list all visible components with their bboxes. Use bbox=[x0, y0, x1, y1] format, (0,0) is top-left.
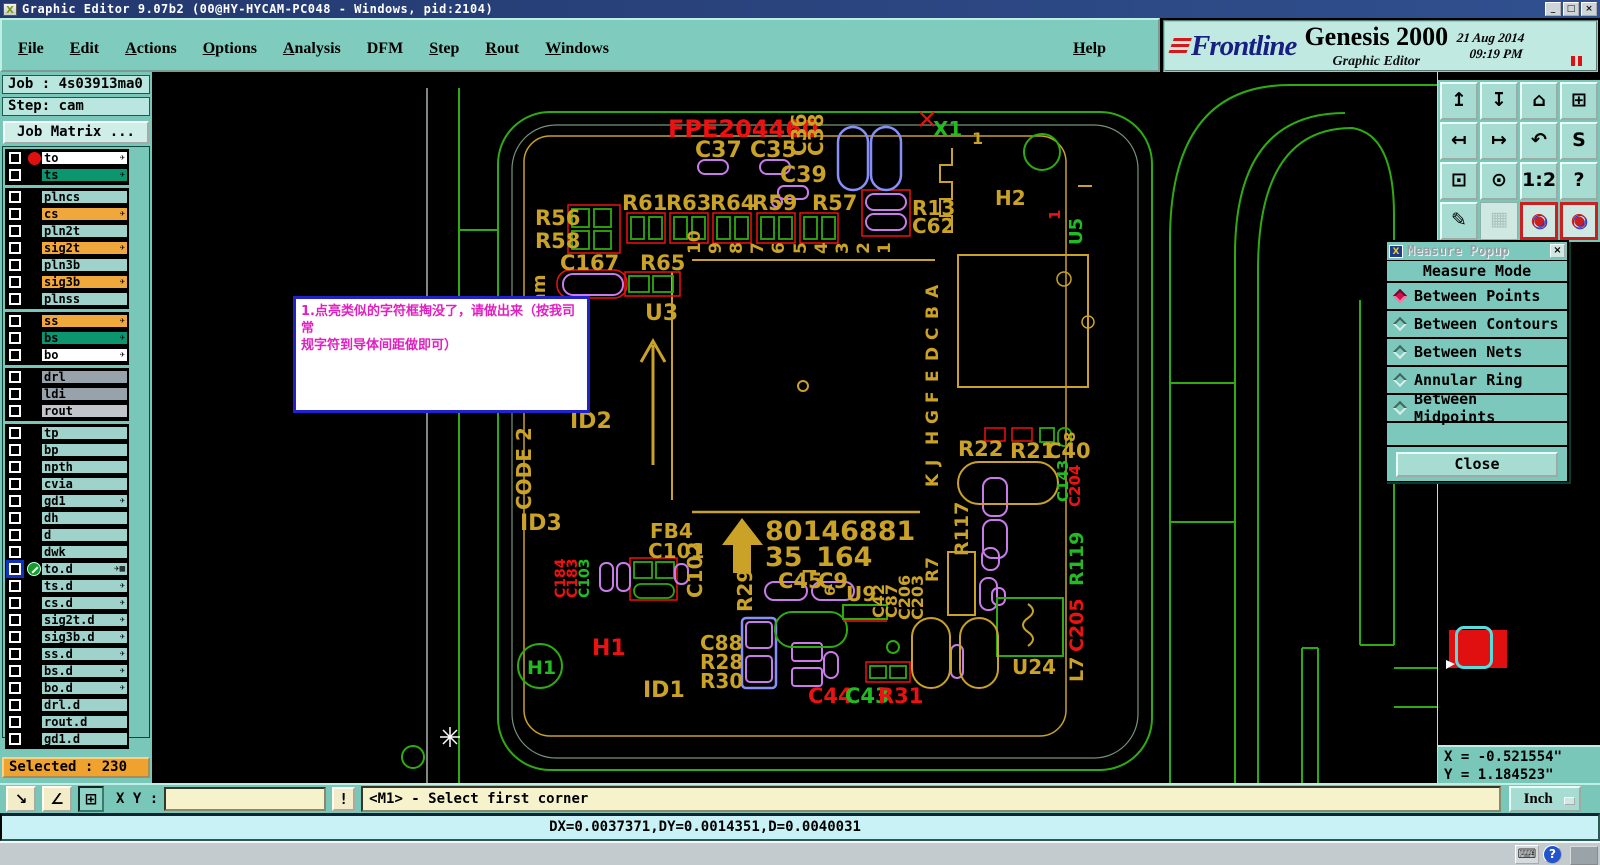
layer-checkbox-ss[interactable] bbox=[9, 315, 21, 327]
measure-option-between-nets[interactable]: Between Nets bbox=[1387, 339, 1567, 367]
layer-row-sig2t.d[interactable]: sig2t.d✈ bbox=[6, 612, 128, 628]
layer-chip-sig3b.d[interactable]: sig3b.d✈ bbox=[41, 630, 128, 644]
layer-chip-plncs[interactable]: plncs bbox=[41, 190, 128, 204]
pcb-label: 8 bbox=[1061, 432, 1079, 442]
app-icon: X bbox=[3, 3, 17, 16]
pcb-label: A bbox=[923, 284, 943, 298]
measure-popup-close-icon[interactable]: × bbox=[1550, 244, 1565, 258]
layer-row-tp[interactable]: tp bbox=[6, 425, 128, 441]
pcb-label: R64 bbox=[710, 191, 755, 215]
layer-row-bs.d[interactable]: bs.d✈ bbox=[6, 663, 128, 679]
layer-arrow-icon: ✈ bbox=[120, 616, 125, 625]
pcb-label: 3 bbox=[833, 242, 853, 254]
menu-options[interactable]: Options bbox=[203, 40, 257, 57]
taskbar: ⌨? bbox=[0, 841, 1600, 865]
layer-row-to[interactable]: to✈ bbox=[6, 150, 128, 166]
zoom-center-button[interactable]: ⊙ bbox=[1480, 162, 1518, 200]
pcb-label: R58 bbox=[535, 229, 580, 253]
layer-chip-cs.d[interactable]: cs.d✈ bbox=[41, 596, 128, 610]
product-edition: Graphic Editor bbox=[1304, 54, 1448, 70]
layer-chip-pln3b[interactable]: pln3b bbox=[41, 258, 128, 272]
layer-row-bo[interactable]: bo✈ bbox=[6, 347, 128, 363]
measure-popup-footer: Close bbox=[1387, 445, 1567, 481]
layer-row-cs[interactable]: cs✈ bbox=[6, 206, 128, 222]
pcb-label: C39 bbox=[780, 163, 827, 188]
layer-name: bo bbox=[44, 349, 58, 361]
layer-checkbox-rout.d[interactable] bbox=[9, 716, 21, 728]
layer-arrow-icon: ✈ bbox=[120, 210, 125, 219]
measure-angle-button[interactable]: ∠ bbox=[42, 786, 72, 812]
layer-arrow-icon: ✈ bbox=[120, 599, 125, 608]
datetime: 21 Aug 2014 09:19 PM bbox=[1454, 30, 1525, 63]
netlist-b-button[interactable]: ◉ bbox=[1560, 202, 1598, 240]
layer-checkbox-sig2t.d[interactable] bbox=[9, 614, 21, 626]
layer-chip-gd1[interactable]: gd1✈ bbox=[41, 494, 128, 508]
prompt-message: <M1> - Select first corner bbox=[361, 786, 1501, 812]
layer-arrow-icon: ✈ bbox=[120, 317, 125, 326]
layer-row-to.d[interactable]: to.d✈▦ bbox=[6, 561, 128, 577]
layer-name: plncs bbox=[44, 191, 80, 203]
layer-checkbox-d[interactable] bbox=[9, 529, 21, 541]
layer-checkbox-dh[interactable] bbox=[9, 512, 21, 524]
layer-row-dwk[interactable]: dwk bbox=[6, 544, 128, 560]
pcb-label: R119 bbox=[1066, 532, 1088, 586]
pcb-label: L7 bbox=[1066, 657, 1088, 682]
netlist-a-button[interactable]: ◉ bbox=[1520, 202, 1558, 240]
pcb-label: U3 bbox=[645, 301, 678, 326]
graphic-editor-window: X Graphic Editor 9.07b2 (00@HY-HYCAM-PC0… bbox=[0, 0, 1600, 865]
pcb-label: 1 bbox=[972, 129, 983, 148]
layer-chip-to[interactable]: to✈ bbox=[41, 151, 128, 165]
pcb-label: C45 bbox=[778, 569, 823, 593]
note-line-2: 规字符到导体间距做即可） bbox=[301, 337, 582, 354]
layer-group-3: ss✈bs✈bo✈ bbox=[5, 312, 129, 365]
layer-checkbox-npth[interactable] bbox=[9, 461, 21, 473]
layer-arrow-icon: ✈▦ bbox=[114, 565, 125, 574]
layer-name: d bbox=[44, 529, 51, 541]
layer-name: cs.d bbox=[44, 597, 73, 609]
pcb-label: ID1 bbox=[643, 678, 685, 703]
note-line-1: 1.点亮类似的字符框掏没了，请做出来（按我司常 bbox=[301, 303, 582, 337]
pcb-label: R56 bbox=[535, 206, 580, 230]
layer-checkbox-dwk[interactable] bbox=[9, 546, 21, 558]
layer-checkbox-sig3b.d[interactable] bbox=[9, 631, 21, 643]
step-label: Step: cam bbox=[2, 97, 150, 116]
layer-row-sig3b[interactable]: sig3b✈ bbox=[6, 274, 128, 290]
job-label: Job : 4s03913ma0 bbox=[2, 75, 150, 94]
selection-outline bbox=[1455, 626, 1493, 669]
xy-label: X Y : bbox=[116, 791, 158, 807]
layer-chip-drl.d[interactable]: drl.d bbox=[41, 698, 128, 712]
menu-help[interactable]: Help bbox=[1073, 40, 1106, 58]
layer-chip-sig3b[interactable]: sig3b✈ bbox=[41, 275, 128, 289]
layer-chip-bo[interactable]: bo✈ bbox=[41, 348, 128, 362]
layer-chip-npth[interactable]: npth bbox=[41, 460, 128, 474]
measure-popup-titlebar[interactable]: X Measure Popup × bbox=[1387, 242, 1567, 261]
menu-file[interactable]: File bbox=[18, 40, 44, 57]
frontline-stripes-icon bbox=[1168, 38, 1192, 54]
layer-row-rout[interactable]: rout bbox=[6, 403, 128, 419]
pcb-label: X1 bbox=[933, 117, 962, 141]
layer-name: sig2t bbox=[44, 242, 80, 254]
pcb-label: C102 bbox=[683, 542, 707, 598]
layer-checkbox-sig3b[interactable] bbox=[9, 276, 21, 288]
measure-options: Between PointsBetween ContoursBetween Ne… bbox=[1387, 283, 1567, 423]
menu-step[interactable]: Step bbox=[429, 40, 459, 57]
layer-arrow-icon: ✈ bbox=[120, 582, 125, 591]
selected-count: Selected : 230 bbox=[2, 757, 150, 778]
maximize-button[interactable]: □ bbox=[1563, 2, 1579, 16]
units-dropdown[interactable]: Inch bbox=[1509, 786, 1581, 812]
xy-input[interactable] bbox=[164, 787, 326, 811]
layer-arrow-icon: ✈ bbox=[120, 278, 125, 287]
pcb-label: C62 bbox=[912, 214, 955, 238]
measure-option-between-points[interactable]: Between Points bbox=[1387, 283, 1567, 311]
pcb-label: C38 bbox=[804, 113, 828, 156]
layer-chip-to.d[interactable]: to.d✈▦ bbox=[41, 562, 128, 576]
radio-diamond-icon bbox=[1393, 345, 1407, 359]
layer-chip-drl[interactable]: drl bbox=[41, 370, 128, 384]
layer-chip-pln2t[interactable]: pln2t bbox=[41, 224, 128, 238]
layer-name: plnss bbox=[44, 293, 80, 305]
measure-option-between-contours[interactable]: Between Contours bbox=[1387, 311, 1567, 339]
pcb-label: 10 bbox=[685, 230, 705, 254]
zoom-in-button[interactable]: ↥ bbox=[1440, 82, 1478, 120]
layer-name: ss.d bbox=[44, 648, 73, 660]
pcb-label: 6 bbox=[769, 242, 789, 254]
layer-checkbox-rout[interactable] bbox=[9, 405, 21, 417]
pcb-label: U24 bbox=[1012, 655, 1056, 679]
layer-chip-bp[interactable]: bp bbox=[41, 443, 128, 457]
pcb-label: CODE 2 bbox=[512, 427, 536, 510]
layer-checkbox-cs[interactable] bbox=[9, 208, 21, 220]
layer-arrow-icon: ✈ bbox=[120, 351, 125, 360]
menu-rout[interactable]: Rout bbox=[485, 40, 519, 57]
radio-diamond-icon bbox=[1393, 401, 1407, 415]
layer-checkbox-tp[interactable] bbox=[9, 427, 21, 439]
home-view-button[interactable]: ⌂ bbox=[1520, 82, 1558, 120]
layer-row-plncs[interactable]: plncs bbox=[6, 189, 128, 205]
layer-row-bo.d[interactable]: bo.d✈ bbox=[6, 680, 128, 696]
coordinate-readout: X = -0.521554" Y = 1.184523" bbox=[1438, 745, 1600, 783]
layer-name: rout.d bbox=[44, 716, 87, 728]
layer-chip-rout[interactable]: rout bbox=[41, 404, 128, 418]
pause-icon bbox=[1571, 56, 1582, 66]
pcb-label: H bbox=[923, 431, 943, 445]
layer-chip-ts[interactable]: ts✈ bbox=[41, 168, 128, 182]
layer-chip-rout.d[interactable]: rout.d bbox=[41, 715, 128, 729]
measure-option-label: Between Midpoints bbox=[1414, 390, 1567, 426]
layer-row-d[interactable]: d bbox=[6, 527, 128, 543]
layer-checkbox-pln2t[interactable] bbox=[9, 225, 21, 237]
measure-popup-spacer bbox=[1387, 423, 1567, 445]
edit-tools-button[interactable]: ✎ bbox=[1440, 202, 1478, 240]
pcb-label: H2 bbox=[995, 186, 1026, 210]
layer-name: dwk bbox=[44, 546, 66, 558]
frontline-logo: Frontline bbox=[1191, 30, 1296, 63]
layer-row-ss[interactable]: ss✈ bbox=[6, 313, 128, 329]
grid-toggle-button[interactable]: ▦ bbox=[1480, 202, 1518, 240]
layer-row-bs[interactable]: bs✈ bbox=[6, 330, 128, 346]
layer-arrow-icon: ✈ bbox=[120, 650, 125, 659]
layer-arrow-icon: ✈ bbox=[120, 667, 125, 676]
pcb-label: R31 bbox=[878, 684, 923, 708]
pcb-label: D bbox=[923, 347, 943, 361]
layer-checkbox-bs.d[interactable] bbox=[9, 665, 21, 677]
layer-group-4: drlldirout bbox=[5, 368, 129, 421]
layer-chip-ss[interactable]: ss✈ bbox=[41, 314, 128, 328]
pcb-label: 7 bbox=[748, 242, 768, 254]
layer-row-gd1[interactable]: gd1✈ bbox=[6, 493, 128, 509]
measure-mode-header: Measure Mode bbox=[1387, 261, 1567, 283]
work-layer-icon bbox=[27, 562, 41, 576]
layer-chip-cs[interactable]: cs✈ bbox=[41, 207, 128, 221]
measure-close-button[interactable]: Close bbox=[1396, 452, 1558, 477]
exclaim-button[interactable]: ! bbox=[332, 787, 355, 811]
layer-chip-d[interactable]: d bbox=[41, 528, 128, 542]
pcb-label: R30 bbox=[700, 669, 743, 693]
window-xy-button[interactable]: ⊞ bbox=[1560, 82, 1598, 120]
layer-checkbox-cs.d[interactable] bbox=[9, 597, 21, 609]
delta-statusbar: DX=0.0037371,DY=0.0014351,D=0.0040031 bbox=[0, 813, 1600, 841]
layer-chip-bo.d[interactable]: bo.d✈ bbox=[41, 681, 128, 695]
pan-right-button[interactable]: ↦ bbox=[1480, 122, 1518, 160]
layer-row-drl.d[interactable]: drl.d bbox=[6, 697, 128, 713]
pcb-label: K bbox=[923, 473, 943, 487]
layer-arrow-icon: ✈ bbox=[120, 154, 125, 163]
layer-name: drl.d bbox=[44, 699, 80, 711]
layer-row-bp[interactable]: bp bbox=[6, 442, 128, 458]
layer-row-rout.d[interactable]: rout.d bbox=[6, 714, 128, 730]
layer-row-sig3b.d[interactable]: sig3b.d✈ bbox=[6, 629, 128, 645]
select-mode-button[interactable]: ↘ bbox=[6, 786, 36, 812]
menu-analysis[interactable]: Analysis bbox=[283, 40, 341, 57]
time: 09:19 PM bbox=[1454, 46, 1523, 62]
pan-left-button[interactable]: ↤ bbox=[1440, 122, 1478, 160]
layer-name: npth bbox=[44, 461, 73, 473]
layer-name: to.d bbox=[44, 563, 73, 575]
layer-checkbox-gd1[interactable] bbox=[9, 495, 21, 507]
menu-edit[interactable]: Edit bbox=[70, 40, 99, 57]
layer-name: gd1.d bbox=[44, 733, 80, 745]
window-buttons: _ □ × bbox=[1545, 2, 1597, 16]
layer-chip-dh[interactable]: dh bbox=[41, 511, 128, 525]
product-block: Genesis 2000 Graphic Editor bbox=[1304, 22, 1448, 70]
menu-dfm[interactable]: DFM bbox=[367, 40, 403, 57]
undo-view-button[interactable]: ↶ bbox=[1520, 122, 1558, 160]
keyboard-icon[interactable]: ⌨ bbox=[1515, 845, 1539, 864]
layer-row-ldi[interactable]: ldi bbox=[6, 386, 128, 402]
help-pick-button[interactable]: ? bbox=[1560, 162, 1598, 200]
layer-arrow-icon: ✈ bbox=[120, 684, 125, 693]
layer-name: bs.d bbox=[44, 665, 73, 677]
pcb-label: G bbox=[923, 410, 943, 424]
popup-icon: X bbox=[1389, 245, 1403, 258]
zoom-out-button[interactable]: ↧ bbox=[1480, 82, 1518, 120]
layer-name: sig3b bbox=[44, 276, 80, 288]
active-layer-dot bbox=[28, 152, 41, 165]
product-name: Genesis 2000 bbox=[1304, 22, 1448, 51]
layer-checkbox-ts[interactable] bbox=[9, 169, 21, 181]
step-outline-button[interactable]: S bbox=[1560, 122, 1598, 160]
pcb-label: R65 bbox=[640, 251, 685, 275]
layer-chip-dwk[interactable]: dwk bbox=[41, 545, 128, 559]
tray-box[interactable] bbox=[1570, 846, 1598, 865]
pcb-label: U5 bbox=[1066, 218, 1087, 245]
layer-row-sig2t[interactable]: sig2t✈ bbox=[6, 240, 128, 256]
titlebar: X Graphic Editor 9.07b2 (00@HY-HYCAM-PC0… bbox=[0, 0, 1600, 18]
pcb-label: 9 bbox=[706, 242, 726, 254]
layer-checkbox-ldi[interactable] bbox=[9, 388, 21, 400]
pcb-label: ID3 bbox=[520, 511, 562, 536]
menu-windows[interactable]: Windows bbox=[545, 40, 609, 57]
layer-chip-cvia[interactable]: cvia bbox=[41, 477, 128, 491]
layer-checkbox-to[interactable] bbox=[9, 152, 21, 164]
menu-actions[interactable]: Actions bbox=[125, 40, 177, 57]
job-matrix-button[interactable]: Job Matrix ... bbox=[3, 121, 149, 144]
pcb-label: F bbox=[923, 391, 943, 403]
pcb-label: R22 bbox=[958, 437, 1003, 461]
layer-name: cvia bbox=[44, 478, 73, 490]
layer-row-cs.d[interactable]: cs.d✈ bbox=[6, 595, 128, 611]
pcb-label: 1 bbox=[875, 242, 895, 254]
layer-checkbox-plnss[interactable] bbox=[9, 293, 21, 305]
measure-option-label: Annular Ring bbox=[1414, 371, 1522, 389]
pcb-label: R63 bbox=[666, 191, 711, 215]
pcb-label: 4 bbox=[812, 242, 832, 254]
pcb-label: R61 bbox=[622, 191, 667, 215]
layer-chip-bs[interactable]: bs✈ bbox=[41, 331, 128, 345]
layer-checkbox-ss.d[interactable] bbox=[9, 648, 21, 660]
measure-popup: X Measure Popup × Measure Mode Between P… bbox=[1385, 240, 1569, 482]
layer-name: ldi bbox=[44, 388, 66, 400]
measure-option-label: Between Points bbox=[1414, 287, 1540, 305]
layer-name: sig2t.d bbox=[44, 614, 95, 626]
pcb-label: 1 bbox=[1046, 210, 1064, 220]
grid-snap-button[interactable]: ⊞ bbox=[78, 786, 104, 812]
pcb-label: C167 bbox=[560, 251, 619, 275]
measure-option-between-midpoints[interactable]: Between Midpoints bbox=[1387, 395, 1567, 423]
pcb-label: 5 bbox=[791, 242, 811, 254]
layer-group-5: tpbpnpthcviagd1✈dhddwkto.d✈▦ts.d✈cs.d✈si… bbox=[5, 424, 129, 749]
help-icon[interactable]: ? bbox=[1543, 845, 1562, 864]
layer-arrow-icon: ✈ bbox=[120, 633, 125, 642]
layer-chip-gd1.d[interactable]: gd1.d bbox=[41, 732, 128, 746]
layer-checkbox-pln3b[interactable] bbox=[9, 259, 21, 271]
layer-row-drl[interactable]: drl bbox=[6, 369, 128, 385]
coord-x: X = -0.521554" bbox=[1444, 748, 1600, 766]
layer-checkbox-bs[interactable] bbox=[9, 332, 21, 344]
pcb-label: C103 bbox=[577, 559, 593, 599]
layer-chip-sig2t[interactable]: sig2t✈ bbox=[41, 241, 128, 255]
layer-name: gd1 bbox=[44, 495, 66, 507]
layer-row-dh[interactable]: dh bbox=[6, 510, 128, 526]
radio-diamond-icon bbox=[1393, 373, 1407, 387]
brand-panel: Frontline Genesis 2000 Graphic Editor 21… bbox=[1163, 20, 1598, 72]
layer-row-plnss[interactable]: plnss bbox=[6, 291, 128, 307]
layer-checkbox-cvia[interactable] bbox=[9, 478, 21, 490]
layer-checkbox-drl[interactable] bbox=[9, 371, 21, 383]
layer-checkbox-bo.d[interactable] bbox=[9, 682, 21, 694]
layer-checkbox-gd1.d[interactable] bbox=[9, 733, 21, 745]
layer-chip-tp[interactable]: tp bbox=[41, 426, 128, 440]
coord-y: Y = 1.184523" bbox=[1444, 766, 1600, 784]
layer-name: bo.d bbox=[44, 682, 73, 694]
cursor-arrow-icon bbox=[1446, 660, 1455, 669]
date: 21 Aug 2014 bbox=[1456, 30, 1525, 46]
layer-checkbox-sig2t[interactable] bbox=[9, 242, 21, 254]
layer-checkbox-ts.d[interactable] bbox=[9, 580, 21, 592]
zoom-fit-button[interactable]: ⊡ bbox=[1440, 162, 1478, 200]
layer-name: ss bbox=[44, 315, 58, 327]
right-toolbar: ↥↧⌂⊞↤↦↶S⊡⊙1:2?✎▦◉◉ bbox=[1438, 80, 1600, 242]
layer-row-ts[interactable]: ts✈ bbox=[6, 167, 128, 183]
layer-chip-ldi[interactable]: ldi bbox=[41, 387, 128, 401]
close-button[interactable]: × bbox=[1581, 2, 1597, 16]
layer-row-gd1.d[interactable]: gd1.d bbox=[6, 731, 128, 747]
taskbar-icons: ⌨? bbox=[1515, 845, 1562, 864]
pcb-label: C204 bbox=[1066, 465, 1084, 507]
measure-option-label: Between Contours bbox=[1414, 315, 1559, 333]
annotation-note: 1.点亮类似的字符框掏没了，请做出来（按我司常 规字符到导体间距做即可） bbox=[293, 296, 590, 413]
layer-name: bp bbox=[44, 444, 58, 456]
pcb-canvas[interactable]: FPE204460C37C35C36C38C39R61R63R64R59R57R… bbox=[152, 72, 1437, 783]
pcb-label: J bbox=[923, 460, 943, 467]
layer-name: pln3b bbox=[44, 259, 80, 271]
layer-row-pln2t[interactable]: pln2t bbox=[6, 223, 128, 239]
layer-name: ts.d bbox=[44, 580, 73, 592]
layer-row-cvia[interactable]: cvia bbox=[6, 476, 128, 492]
layer-name: rout bbox=[44, 405, 73, 417]
layer-row-ss.d[interactable]: ss.d✈ bbox=[6, 646, 128, 662]
layer-group-2: plncscs✈pln2tsig2t✈pln3bsig3b✈plnss bbox=[5, 188, 129, 309]
layer-name: pln2t bbox=[44, 225, 80, 237]
layer-name: sig3b.d bbox=[44, 631, 95, 643]
layer-name: to bbox=[44, 152, 58, 164]
measure-popup-title: Measure Popup bbox=[1407, 244, 1509, 259]
command-bar: ↘∠⊞ X Y : ! <M1> - Select first corner I… bbox=[0, 783, 1600, 813]
pcb-label: R29 bbox=[733, 569, 757, 612]
pcb-label: B bbox=[923, 306, 943, 319]
pcb-label: R57 bbox=[812, 191, 857, 215]
scale-1-2-button[interactable]: 1:2 bbox=[1520, 162, 1558, 200]
radio-diamond-icon bbox=[1393, 317, 1407, 331]
layer-arrow-icon: ✈ bbox=[120, 334, 125, 343]
minimize-button[interactable]: _ bbox=[1545, 2, 1561, 16]
layer-checkbox-bp[interactable] bbox=[9, 444, 21, 456]
layer-arrow-icon: ✈ bbox=[120, 244, 125, 253]
pcb-label: R7 bbox=[923, 557, 943, 582]
cmd-icons: ↘∠⊞ bbox=[0, 786, 104, 812]
layer-chip-sig2t.d[interactable]: sig2t.d✈ bbox=[41, 613, 128, 627]
layer-row-ts.d[interactable]: ts.d✈ bbox=[6, 578, 128, 594]
layer-chip-ts.d[interactable]: ts.d✈ bbox=[41, 579, 128, 593]
layer-checkbox-plncs[interactable] bbox=[9, 191, 21, 203]
layer-chip-bs.d[interactable]: bs.d✈ bbox=[41, 664, 128, 678]
pcb-label: R117 bbox=[951, 502, 973, 556]
pcb-label: C205 bbox=[1066, 598, 1088, 652]
pcb-label: C bbox=[923, 328, 943, 340]
layer-arrow-icon: ✈ bbox=[120, 497, 125, 506]
layer-chip-plnss[interactable]: plnss bbox=[41, 292, 128, 306]
layer-checkbox-drl.d[interactable] bbox=[9, 699, 21, 711]
layer-checkbox-to.d[interactable] bbox=[9, 563, 21, 575]
pcb-label: R59 bbox=[752, 191, 797, 215]
layer-chip-ss.d[interactable]: ss.d✈ bbox=[41, 647, 128, 661]
layer-checkbox-bo[interactable] bbox=[9, 349, 21, 361]
layer-row-npth[interactable]: npth bbox=[6, 459, 128, 475]
layer-row-pln3b[interactable]: pln3b bbox=[6, 257, 128, 273]
